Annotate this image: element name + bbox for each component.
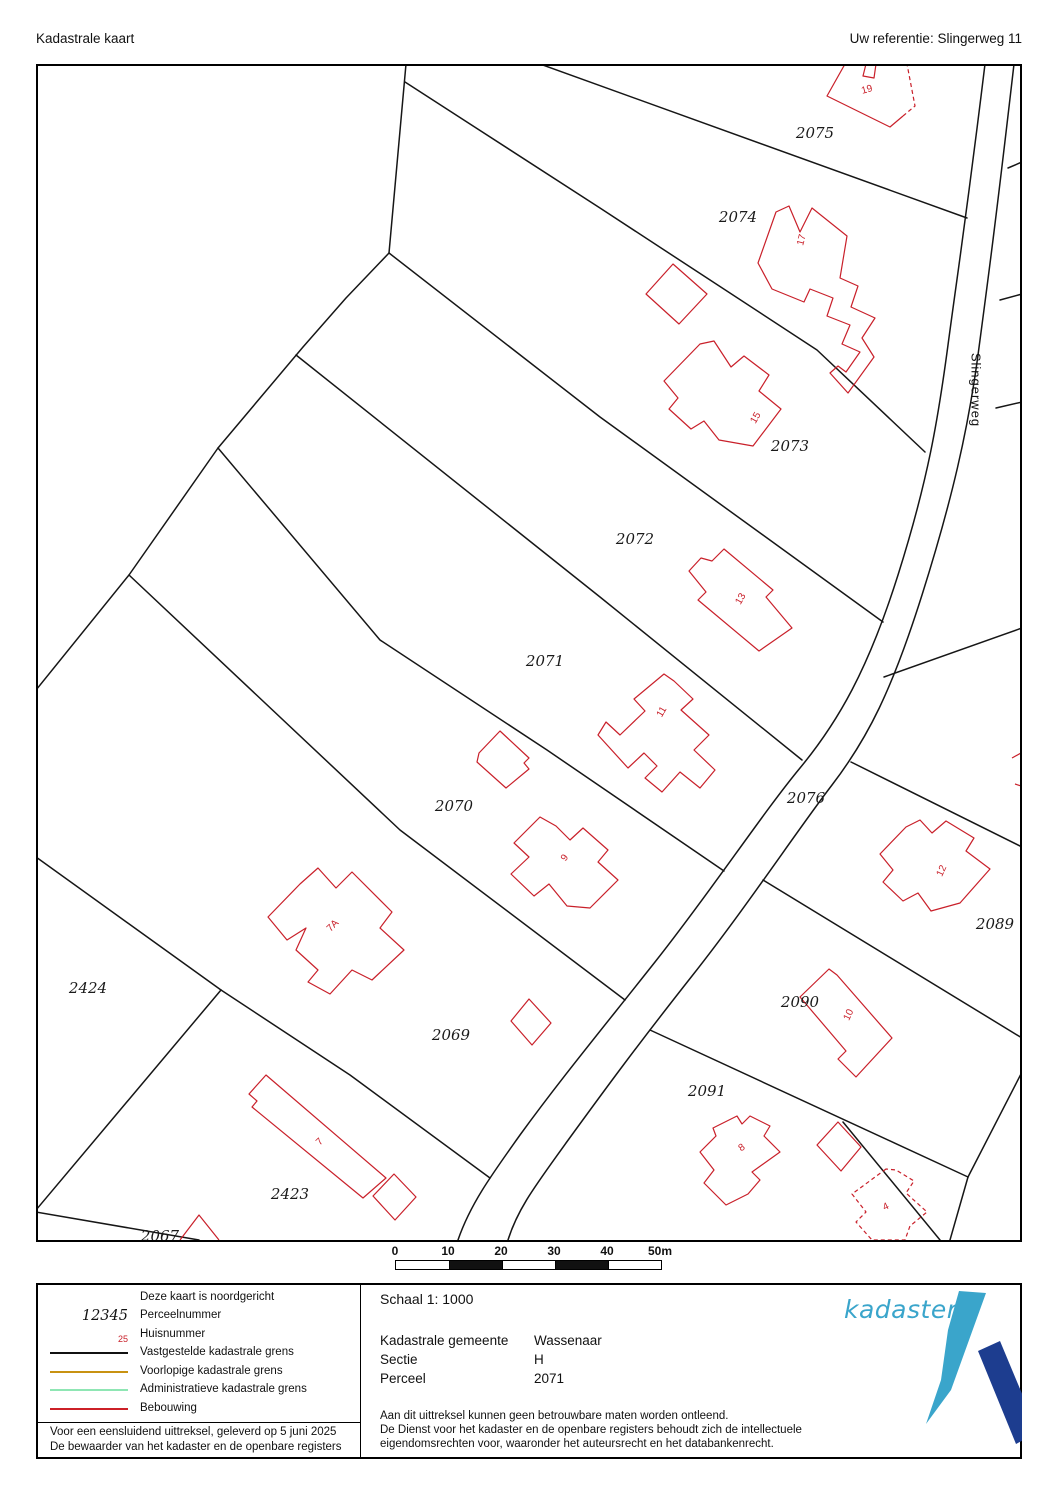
cadastral-extract-page: Kadastrale kaart Uw referentie: Slingerw… <box>0 0 1058 1497</box>
reference-text: Uw referentie: Slingerweg 11 <box>850 31 1022 46</box>
detail-label: Sectie <box>380 1352 418 1367</box>
north-orientation-note: Deze kaart is noordgericht <box>140 1291 274 1303</box>
page-title: Kadastrale kaart <box>36 31 134 46</box>
scale-segment <box>555 1261 608 1269</box>
scale-tick-30: 30 <box>547 1244 560 1258</box>
scale-bar-graphic <box>395 1260 662 1270</box>
parcel-number-2075: 2075 <box>796 124 834 142</box>
parcel-number-2069: 2069 <box>432 1026 470 1044</box>
legend-label: Administratieve kadastrale grens <box>140 1383 307 1395</box>
legend-row-voorlopige-kadastrale-grens: Voorlopige kadastrale grens <box>38 1363 360 1381</box>
disclaimer-line-1: Aan dit uittreksel kunnen geen betrouwba… <box>380 1410 728 1422</box>
house-number-8: 8 <box>737 1142 748 1154</box>
detail-value: H <box>534 1352 544 1367</box>
house-number-12: 12 <box>935 864 950 879</box>
scale-segment <box>502 1261 555 1269</box>
scale-tick-0: 0 <box>392 1244 399 1258</box>
disclaimer-line-2: De Dienst voor het kadaster en de openba… <box>380 1424 802 1436</box>
legend-label: Voorlopige kadastrale grens <box>140 1365 283 1377</box>
parcel-number-2074: 2074 <box>719 208 757 226</box>
legend-row-huisnummer: 25Huisnummer <box>38 1326 360 1344</box>
house-number-4: 4 <box>881 1201 891 1213</box>
legend-row-administratieve-kadastrale-grens: Administratieve kadastrale grens <box>38 1381 360 1399</box>
road-label-slingerweg: Slingerweg <box>969 353 984 427</box>
detail-value: 2071 <box>534 1371 564 1386</box>
legend-symbol <box>50 1344 128 1362</box>
parcel-number-2423: 2423 <box>271 1185 309 1203</box>
map-details: Schaal 1: 1000 Kadastrale gemeenteWassen… <box>370 1285 790 1457</box>
legend-row-perceelnummer: 12345Perceelnummer <box>38 1307 360 1325</box>
house-number-11: 11 <box>655 705 670 719</box>
detail-perceel: Perceel2071 <box>380 1371 426 1386</box>
legend-divider-horizontal <box>38 1422 360 1423</box>
house-number-19: 19 <box>860 83 874 97</box>
scale-text: Schaal 1: 1000 <box>380 1291 473 1307</box>
legend-symbol: 12345 <box>50 1307 128 1325</box>
scale-bar: 01020304050m <box>395 1244 661 1270</box>
house-number-17: 17 <box>795 233 809 247</box>
legend-symbol <box>50 1363 128 1381</box>
parcel-number-2090: 2090 <box>781 993 819 1011</box>
parcel-number-2089: 2089 <box>976 915 1014 933</box>
legend-label: Bebouwing <box>140 1402 197 1414</box>
detail-kadastrale-gemeente: Kadastrale gemeenteWassenaar <box>380 1333 508 1348</box>
detail-label: Kadastrale gemeente <box>380 1333 508 1348</box>
house-number-15: 15 <box>748 410 763 425</box>
legend-symbol <box>50 1400 128 1418</box>
detail-value: Wassenaar <box>534 1333 602 1348</box>
scale-tick-10: 10 <box>441 1244 454 1258</box>
legend-symbol: 25 <box>50 1326 128 1344</box>
cadastral-map: 2075207420732072207120702076208920902091… <box>36 64 1022 1242</box>
scale-tick-40: 40 <box>600 1244 613 1258</box>
scale-tick-20: 20 <box>494 1244 507 1258</box>
house-number-10: 10 <box>842 1008 857 1023</box>
house-number-7A: 7A <box>325 918 341 934</box>
parcel-number-2091: 2091 <box>688 1082 726 1100</box>
legend-row-bebouwing: Bebouwing <box>38 1400 360 1418</box>
keeper-statement: De bewaarder van het kadaster en de open… <box>50 1441 342 1453</box>
legend-label: Huisnummer <box>140 1328 205 1340</box>
parcel-number-2072: 2072 <box>616 530 654 548</box>
parcel-number-2076: 2076 <box>787 789 825 807</box>
parcel-number-2067: 2067 <box>141 1227 179 1242</box>
parcel-number-2071: 2071 <box>526 652 564 670</box>
house-number-13: 13 <box>733 591 748 606</box>
kadaster-logo-icon <box>882 1285 1022 1457</box>
legend-divider-vertical <box>360 1285 361 1457</box>
legend-box: Deze kaart is noordgericht 12345Perceeln… <box>36 1283 1022 1459</box>
extract-statement: Voor een eensluidend uittreksel, gelever… <box>50 1426 336 1438</box>
detail-label: Perceel <box>380 1371 426 1386</box>
parcel-number-2424: 2424 <box>69 979 107 997</box>
scale-segment <box>396 1261 449 1269</box>
house-number-7: 7 <box>314 1136 326 1148</box>
map-labels: 2075207420732072207120702076208920902091… <box>38 66 1020 1240</box>
scale-segment <box>608 1261 661 1269</box>
legend-row-vastgestelde-kadastrale-grens: Vastgestelde kadastrale grens <box>38 1344 360 1362</box>
parcel-number-2070: 2070 <box>435 797 473 815</box>
disclaimer-line-3: eigendomsrechten voor, waaronder het aut… <box>380 1438 774 1450</box>
house-number-9: 9 <box>559 853 571 864</box>
scale-segment <box>449 1261 502 1269</box>
detail-sectie: SectieH <box>380 1352 418 1367</box>
scale-tick-50m: 50m <box>648 1244 672 1258</box>
parcel-number-2073: 2073 <box>771 437 809 455</box>
legend-label: Vastgestelde kadastrale grens <box>140 1346 294 1358</box>
legend-symbol <box>50 1381 128 1399</box>
legend-label: Perceelnummer <box>140 1309 221 1321</box>
